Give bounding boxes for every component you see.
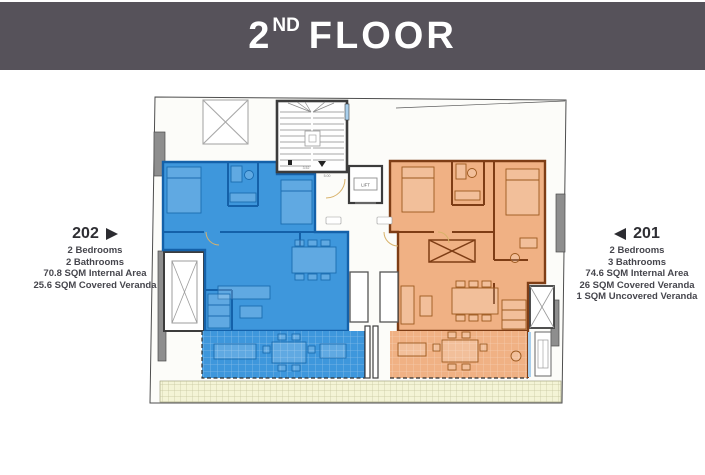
- arrow-left-icon: [614, 228, 626, 240]
- vanity: [455, 191, 480, 200]
- plant: [511, 351, 521, 361]
- dimension-label: 3.52: [303, 166, 310, 170]
- unit-201-spec: 74.6 SQM Internal Area: [557, 268, 705, 280]
- shower: [456, 164, 466, 179]
- unit-201-spec: 3 Bathrooms: [557, 257, 705, 269]
- outdoor-sofa: [214, 344, 256, 359]
- bed: [281, 180, 312, 224]
- shower: [231, 166, 242, 182]
- dining-table: [452, 288, 498, 314]
- bed: [402, 167, 434, 212]
- coffee-table: [420, 296, 432, 316]
- unit-202-title: 202: [10, 225, 180, 243]
- bed: [167, 167, 201, 213]
- unit-201-spec: 2 Bedrooms: [557, 245, 705, 257]
- shaft-right: [530, 286, 554, 328]
- lift: LIFT: [349, 166, 382, 203]
- unit-202-spec: 2 Bedrooms: [10, 245, 180, 257]
- veranda-202: [202, 331, 365, 378]
- dining-table: [292, 247, 336, 273]
- wc: [511, 254, 520, 263]
- wc: [245, 171, 254, 180]
- outdoor-table: [272, 342, 306, 363]
- arrow-right-icon: [106, 228, 118, 240]
- lift-label: LIFT: [361, 183, 370, 188]
- wc: [468, 169, 477, 178]
- sofa: [401, 286, 414, 324]
- veranda-201: [390, 331, 528, 378]
- lounger: [320, 344, 346, 358]
- rooflight-shaft: [203, 100, 248, 144]
- unit-201-spec: 26 SQM Covered Veranda: [557, 280, 705, 292]
- vanity: [230, 193, 256, 202]
- stair-window: [345, 104, 349, 120]
- staircase: 3.52 5.00: [277, 101, 349, 178]
- bed: [506, 169, 539, 215]
- unit-201-title: 201: [557, 225, 705, 243]
- apartment-201-area: [390, 161, 545, 378]
- unit-202-spec: 25.6 SQM Covered Veranda: [10, 280, 180, 292]
- unit-201-label: 201 2 Bedrooms 3 Bathrooms 74.6 SQM Inte…: [557, 225, 705, 303]
- page: 2 ND FLOOR: [0, 0, 705, 475]
- coffee-table: [240, 306, 262, 318]
- stair-up-mark: [288, 160, 292, 165]
- unit-201-spec: 1 SQM Uncovered Veranda: [557, 291, 705, 303]
- outdoor-table: [442, 340, 478, 362]
- terrace-strip: [160, 381, 561, 402]
- kitchen-counter: [502, 300, 526, 329]
- unit-202-label: 202 2 Bedrooms 2 Bathrooms 70.8 SQM Inte…: [10, 225, 180, 291]
- unit-202-spec: 2 Bathrooms: [10, 257, 180, 269]
- ensuite-vanity: [520, 238, 537, 248]
- kitchen-counter: [208, 294, 230, 328]
- unit-202-spec: 70.8 SQM Internal Area: [10, 268, 180, 280]
- unit-202-number: 202: [72, 225, 99, 243]
- dimension-label: 5.00: [324, 174, 331, 178]
- unit-201-number: 201: [633, 225, 660, 243]
- outdoor-sofa: [398, 343, 426, 356]
